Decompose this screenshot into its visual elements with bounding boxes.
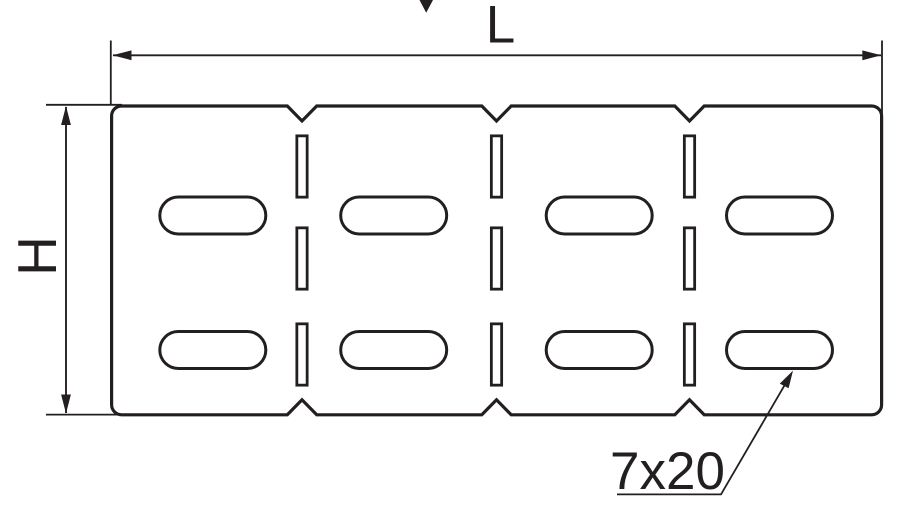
svg-text:L: L [486, 0, 515, 55]
svg-text:7x20: 7x20 [610, 442, 725, 501]
svg-text:H: H [6, 236, 68, 276]
